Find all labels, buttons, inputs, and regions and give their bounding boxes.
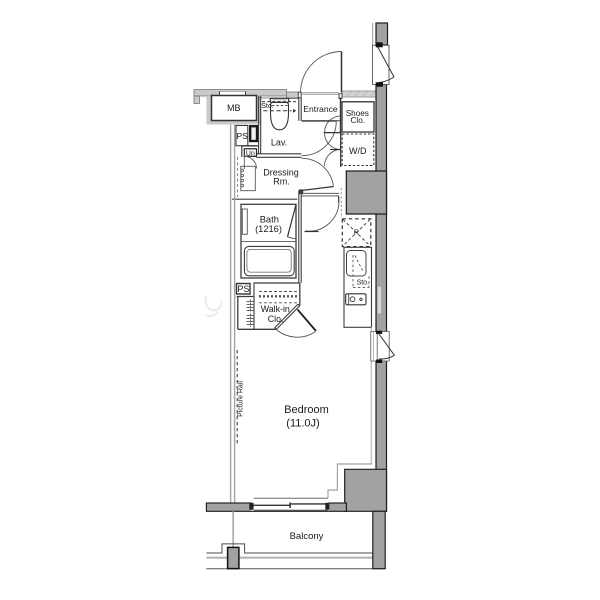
svg-text:Entrance: Entrance (303, 104, 338, 114)
svg-text:MB: MB (227, 103, 241, 113)
svg-text:Bedroom: Bedroom (284, 404, 329, 416)
svg-text:Sto.: Sto. (261, 103, 274, 110)
svg-text:PS: PS (237, 284, 249, 294)
svg-text:Clo.: Clo. (351, 116, 366, 125)
svg-text:Clo.: Clo. (268, 314, 284, 324)
svg-text:Walk-in: Walk-in (261, 304, 290, 314)
svg-text:(11.0J): (11.0J) (286, 418, 319, 430)
svg-text:(1216): (1216) (255, 224, 282, 234)
svg-text:Picture Rail: Picture Rail (238, 381, 245, 417)
svg-text:Balcony: Balcony (290, 531, 324, 542)
svg-text:Rm.: Rm. (273, 177, 290, 187)
svg-text:Sto.: Sto. (357, 280, 370, 287)
svg-text:Lav.: Lav. (271, 137, 287, 147)
svg-text:W/D: W/D (349, 146, 367, 156)
svg-text:R: R (354, 228, 360, 237)
svg-text:PS: PS (236, 131, 248, 141)
